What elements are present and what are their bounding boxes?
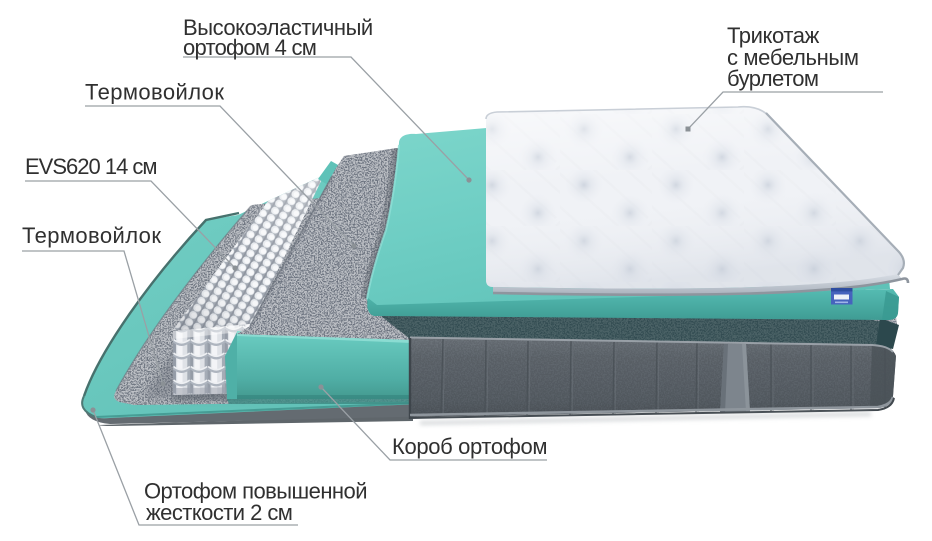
- svg-text:Короб ортофом: Короб ортофом: [392, 434, 547, 459]
- svg-text:жесткости 2 см: жесткости 2 см: [146, 500, 292, 525]
- svg-text:Термовойлок: Термовойлок: [85, 80, 224, 105]
- svg-text:Термовойлок: Термовойлок: [22, 223, 161, 248]
- svg-text:EVS620 14 см: EVS620 14 см: [25, 154, 157, 179]
- svg-text:бурлетом: бурлетом: [727, 66, 819, 91]
- svg-text:ортофом 4 см: ортофом 4 см: [183, 35, 316, 60]
